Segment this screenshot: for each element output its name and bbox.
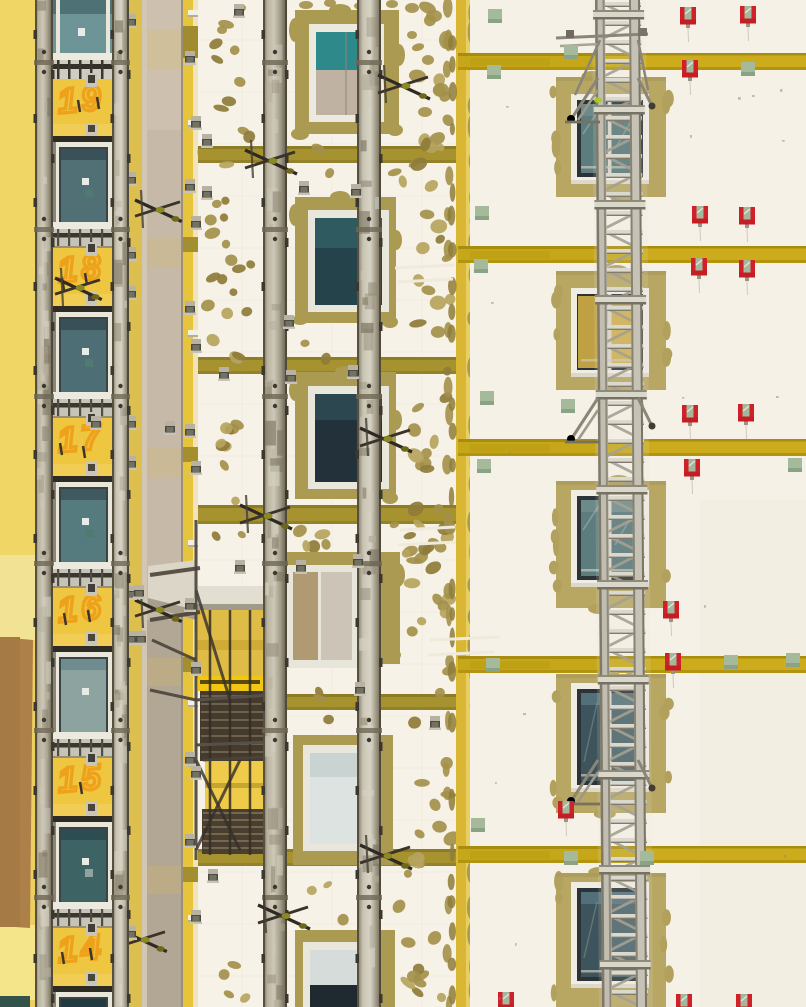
svg-text:16: 16 <box>56 587 106 630</box>
